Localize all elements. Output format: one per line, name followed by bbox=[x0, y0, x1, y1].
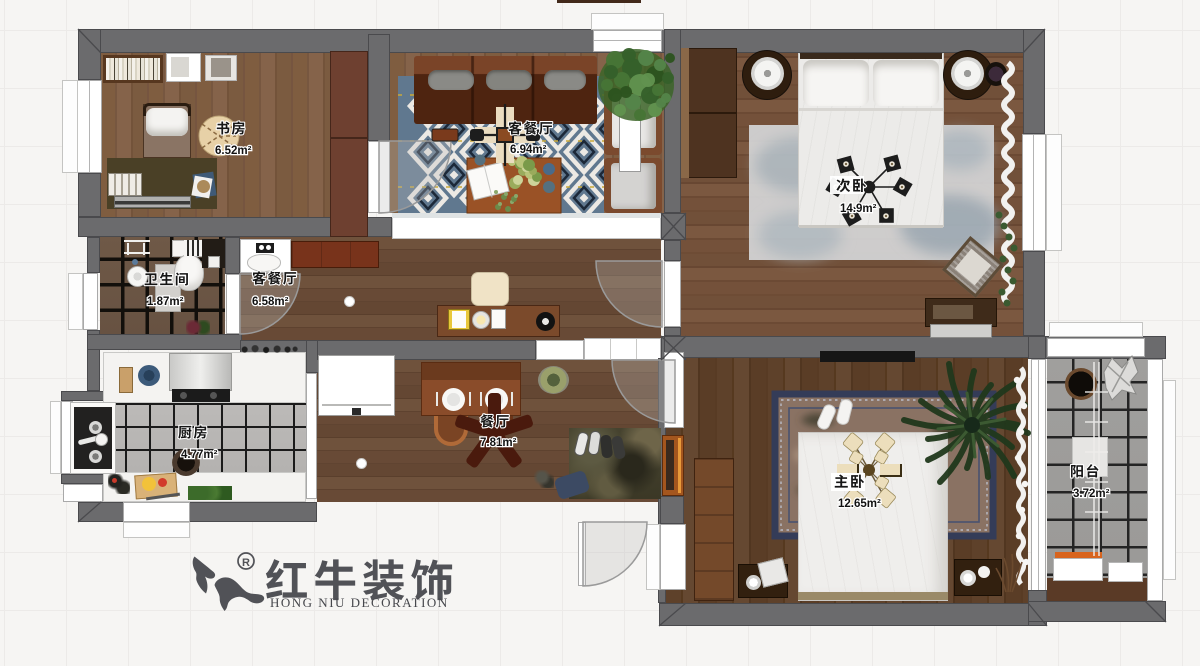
svg-text:6.52m²: 6.52m² bbox=[215, 145, 252, 157]
svg-text:1.87m²: 1.87m² bbox=[147, 296, 184, 308]
svg-text:4.77m²: 4.77m² bbox=[181, 449, 218, 461]
svg-text:6.58m²: 6.58m² bbox=[252, 296, 289, 308]
svg-text:R: R bbox=[242, 557, 250, 569]
svg-text:14.9m²: 14.9m² bbox=[840, 203, 877, 215]
svg-text:HONG NIU DECORATION: HONG NIU DECORATION bbox=[270, 595, 449, 610]
svg-text:12.65m²: 12.65m² bbox=[838, 498, 881, 510]
svg-text:6.94m²: 6.94m² bbox=[510, 144, 547, 156]
svg-text:3.72m²: 3.72m² bbox=[1073, 488, 1110, 500]
svg-text:7.81m²: 7.81m² bbox=[480, 437, 517, 449]
